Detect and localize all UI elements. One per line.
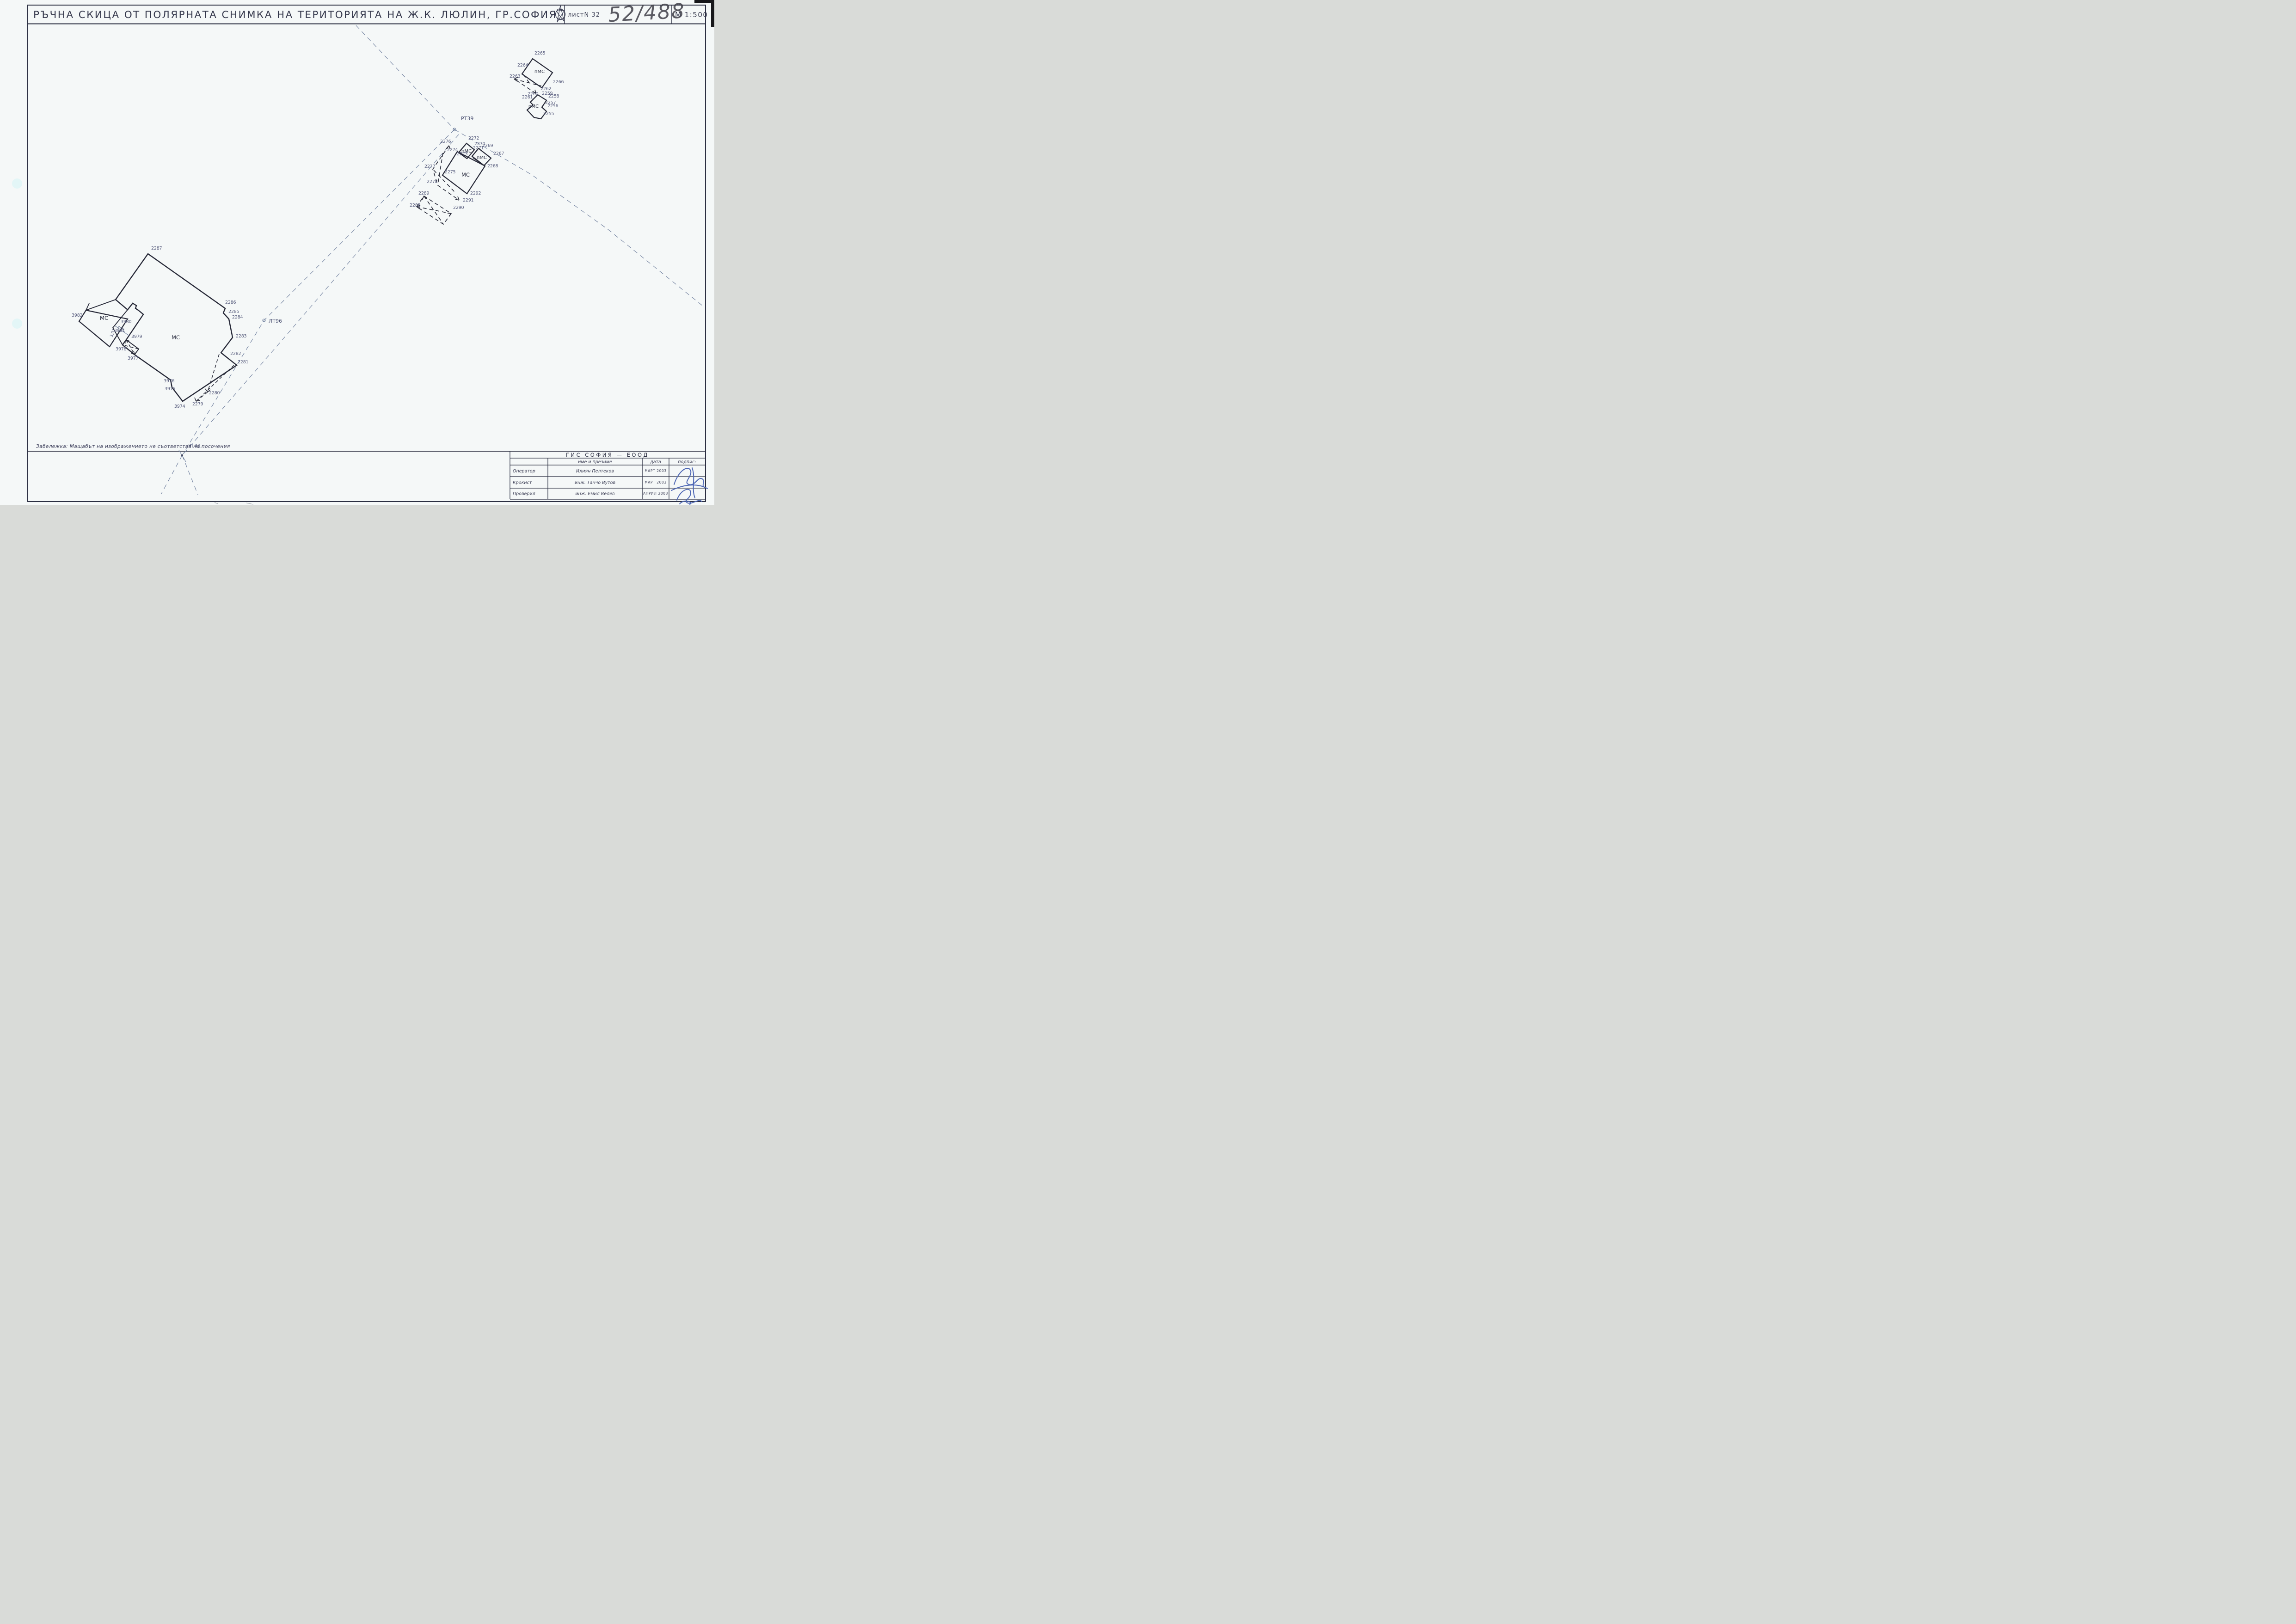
row-date: МАРТ 2003 bbox=[645, 480, 667, 484]
cluster-left bbox=[79, 254, 237, 401]
row-name: инж. Танчо Вутов bbox=[575, 480, 616, 485]
building-outline-main bbox=[116, 254, 237, 401]
map-label-2267: 2267 bbox=[493, 151, 504, 156]
map-label-2292: 2292 bbox=[470, 191, 481, 196]
map-label-2289: 2289 bbox=[418, 191, 430, 196]
map-label-2268: 2268 bbox=[487, 164, 498, 169]
map-label-2258: 2258 bbox=[548, 94, 559, 99]
survey-line bbox=[182, 135, 459, 455]
map-label-2266: 2266 bbox=[553, 80, 564, 85]
punch-hole bbox=[12, 178, 22, 189]
map-label-3976: 3976 bbox=[164, 379, 175, 384]
map-label-2288: 2288 bbox=[410, 203, 421, 208]
row-date: МАРТ 2003 bbox=[645, 469, 667, 473]
map-label-3975: 3975 bbox=[165, 386, 176, 392]
map-label-2264: 2264 bbox=[517, 63, 528, 68]
row-name: Илиян Пелтеков bbox=[576, 469, 614, 474]
col-date: дата bbox=[650, 460, 661, 465]
map-label-3979: 3979 bbox=[131, 334, 142, 339]
map-label-2272: 2272 bbox=[468, 136, 479, 141]
scan-artifacts bbox=[12, 0, 714, 504]
survey-point-rt41 bbox=[181, 454, 183, 456]
map-label-2256: 2256 bbox=[547, 104, 559, 109]
note-text: Забележка: Мащабът на изображението не с… bbox=[36, 444, 230, 449]
map-label-пМС: пМС bbox=[461, 149, 472, 154]
map-label-2275: 2275 bbox=[445, 170, 456, 175]
signature-table: ГИС СОФИЯ — ЕООД име и презиме дата подп… bbox=[510, 451, 706, 499]
map-label-2263: 2263 bbox=[510, 74, 521, 79]
map-label-3982: 3982 bbox=[72, 313, 83, 318]
map-label-2255: 2255 bbox=[543, 111, 554, 116]
col-signature: подпис: bbox=[678, 460, 696, 465]
map-label-2269: 2269 bbox=[482, 143, 493, 148]
survey-line bbox=[182, 455, 198, 495]
map-label-3978: 3978 bbox=[116, 347, 127, 352]
scanned-sheet: РЪЧНА СКИЦА ОТ ПОЛЯРНАТА СНИМКА НА ТЕРИТ… bbox=[0, 0, 714, 505]
survey-line bbox=[161, 455, 182, 494]
signatures bbox=[671, 468, 707, 504]
map-label-2283: 2283 bbox=[236, 334, 247, 339]
map-label-пМС: пМС bbox=[528, 104, 539, 109]
sheet-svg: РЪЧНА СКИЦА ОТ ПОЛЯРНАТА СНИМКА НА ТЕРИТ… bbox=[0, 0, 714, 505]
survey-line bbox=[182, 129, 454, 455]
scale-label: М 1:500 bbox=[675, 11, 708, 19]
map-label-2284: 2284 bbox=[232, 315, 243, 320]
page-edge-shadow bbox=[711, 0, 714, 27]
construction-dashes bbox=[417, 146, 459, 224]
map-label-пМС: пМС bbox=[477, 155, 487, 160]
sheet-number-handwritten: 52/488 bbox=[608, 0, 686, 27]
map-label-2277: 2277 bbox=[424, 164, 436, 169]
map-label-РТ39: РТ39 bbox=[461, 116, 473, 122]
map-label-ЛТ96: ЛТ96 bbox=[269, 318, 282, 324]
map-label-2279: 2279 bbox=[192, 402, 203, 407]
col-name: име и презиме bbox=[578, 460, 612, 465]
signature-stroke bbox=[674, 468, 705, 487]
map-label-2271: 2271 bbox=[473, 146, 484, 151]
row-name: инж. Емил Велев bbox=[575, 491, 615, 496]
map-label-МС: МС bbox=[172, 334, 180, 341]
map-label-2278: 2278 bbox=[427, 179, 438, 184]
map-label-3977: 3977 bbox=[128, 356, 139, 361]
map-label-3974: 3974 bbox=[174, 404, 185, 409]
scan-noise bbox=[215, 503, 253, 504]
sheet-label: листN 32 bbox=[568, 12, 600, 18]
map-label-2261: 2261 bbox=[522, 95, 533, 100]
table-title: ГИС СОФИЯ — ЕООД bbox=[566, 452, 649, 458]
survey-line bbox=[356, 25, 454, 129]
map-label-3980: 3980 bbox=[121, 319, 132, 325]
map-label-2285: 2285 bbox=[228, 309, 239, 314]
map-label-пМС: пМС bbox=[534, 69, 545, 74]
map-label-2291: 2291 bbox=[463, 198, 474, 203]
map-label-МС: МС bbox=[100, 315, 108, 321]
row-role: Проверил bbox=[513, 491, 535, 496]
frame bbox=[28, 5, 706, 502]
survey-line bbox=[454, 129, 705, 307]
map-label-2286: 2286 bbox=[225, 300, 236, 305]
map-label-2274: 2274 bbox=[447, 147, 458, 153]
row-role: Крокист bbox=[513, 480, 532, 485]
map-labels: 2265226422632266226222592260226122582257… bbox=[72, 51, 564, 449]
map-label-2280: 2280 bbox=[209, 391, 220, 396]
map-label-2265: 2265 bbox=[534, 51, 546, 56]
map-label-МС: МС bbox=[461, 172, 470, 178]
survey-network bbox=[161, 25, 705, 495]
map-label-2282: 2282 bbox=[230, 351, 241, 356]
punch-hole bbox=[12, 319, 22, 329]
row-role: Оператор bbox=[513, 469, 535, 474]
map-label-2276: 2276 bbox=[440, 139, 451, 144]
header: РЪЧНА СКИЦА ОТ ПОЛЯРНАТА СНИМКА НА ТЕРИТ… bbox=[33, 0, 708, 27]
map-label-2287: 2287 bbox=[151, 246, 162, 251]
page-title: РЪЧНА СКИЦА ОТ ПОЛЯРНАТА СНИМКА НА ТЕРИТ… bbox=[33, 9, 557, 21]
wall-link bbox=[86, 300, 116, 310]
map-label-2281: 2281 bbox=[238, 360, 249, 365]
row-date: АПРИЛ 2003 bbox=[643, 491, 668, 496]
map-label-2290: 2290 bbox=[453, 205, 464, 210]
